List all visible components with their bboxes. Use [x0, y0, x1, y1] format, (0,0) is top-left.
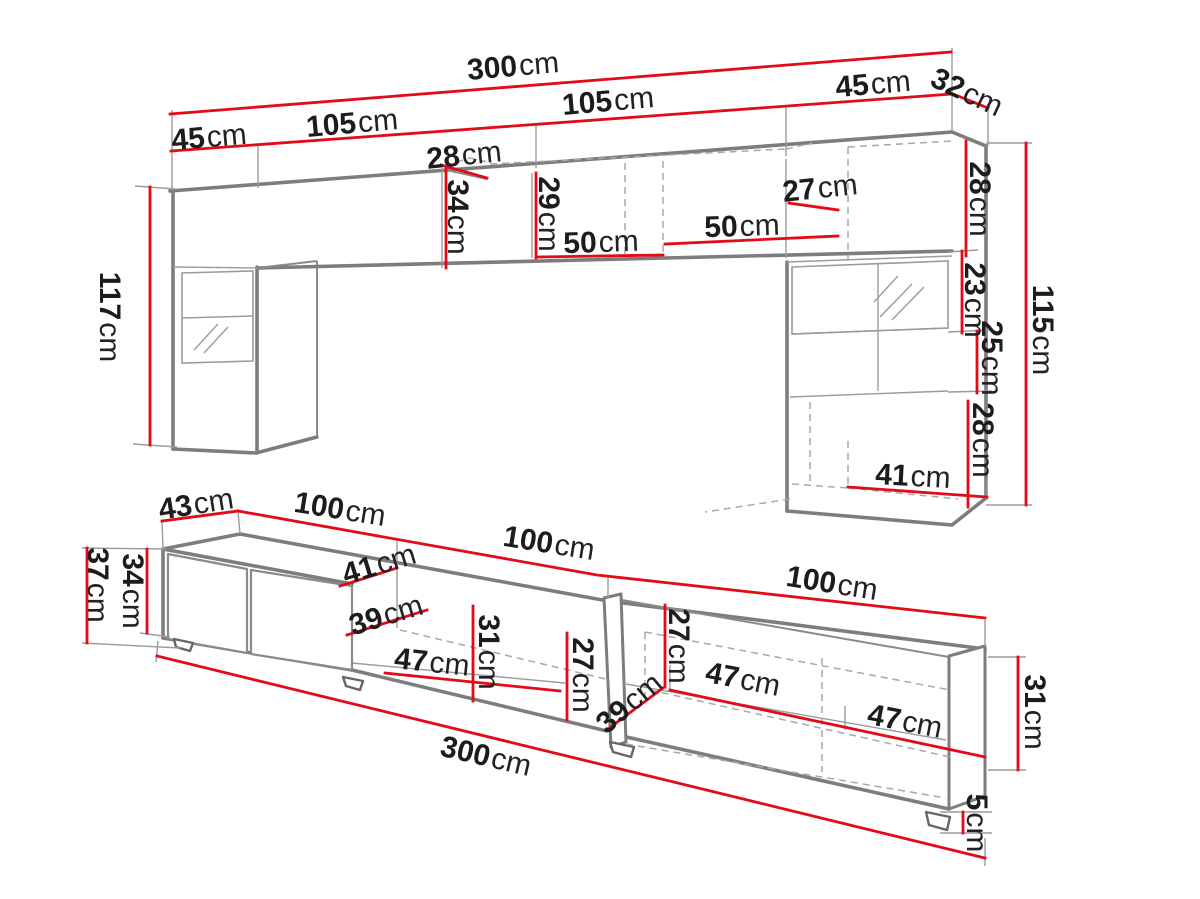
dim-carcass-height-34: 34cm [117, 553, 150, 628]
door-panel-1 [168, 554, 247, 653]
door-panel-2 [251, 570, 352, 670]
dim-inner-width-47-right: 47cm [865, 698, 945, 745]
dim-end-height-37: 37cm [82, 547, 115, 622]
dim-inner-width-47-mid: 47cm [703, 656, 783, 703]
bottom-view-dimension-lines [87, 511, 1018, 858]
dim-segment-45-left: 45cm [170, 117, 248, 156]
foot [926, 812, 950, 830]
dim-top-cabinet-height-28: 28cm [964, 161, 997, 236]
dim-segment-45-right: 45cm [834, 64, 912, 103]
dim-shelf-width-41: 41cm [875, 458, 952, 495]
dim-left-column-117: 117cm [94, 272, 127, 362]
dim-cabinet-height-34: 34cm [442, 179, 475, 254]
foot [343, 677, 363, 690]
top-view-outlines [170, 132, 986, 525]
top-view-hidden-edges [445, 141, 958, 512]
dim-shelf-50-right: 50cm [704, 208, 780, 244]
dim-shelf-gap-25: 25cm [976, 320, 1009, 395]
dim-total-width-300: 300cm [466, 46, 561, 87]
right-glass-door [792, 261, 948, 334]
furniture-dimension-diagram: 300cm 45cm 105cm 105cm 45cm 32cm 28cm 34… [0, 0, 1200, 899]
end-panel [949, 646, 985, 809]
dim-step-depth-28: 28cm [425, 135, 503, 176]
dim-segment-105-left: 105cm [305, 103, 400, 144]
top-view-labels: 300cm 45cm 105cm 105cm 45cm 32cm 28cm 34… [94, 46, 1060, 495]
diagram-svg: 300cm 45cm 105cm 105cm 45cm 32cm 28cm 34… [0, 0, 1200, 899]
dim-depth-32: 32cm [926, 61, 1008, 123]
dim-inner-height-27-right: 27cm [663, 608, 696, 683]
dim-top-depth-41: 41cm [338, 537, 420, 591]
dim-shelf-50-left: 50cm [563, 224, 639, 260]
dim-foot-height-5: 5cm [961, 794, 994, 853]
dim-shelf-depth-27: 27cm [781, 168, 859, 209]
dim-right-column-115: 115cm [1027, 285, 1060, 375]
left-glass-door [182, 271, 253, 363]
dim-inner-height-27-left: 27cm [567, 637, 600, 712]
dim-end-height-31-right: 31cm [1019, 674, 1052, 749]
dim-end-depth-43: 43cm [156, 482, 236, 526]
dim-inner-height-31: 31cm [473, 614, 506, 689]
dim-cabinet-height-29: 29cm [533, 176, 566, 251]
dim-segment-100-left: 100cm [292, 486, 388, 533]
dim-lower-section-28: 28cm [967, 402, 1000, 477]
dim-segment-100-right: 100cm [784, 560, 880, 607]
